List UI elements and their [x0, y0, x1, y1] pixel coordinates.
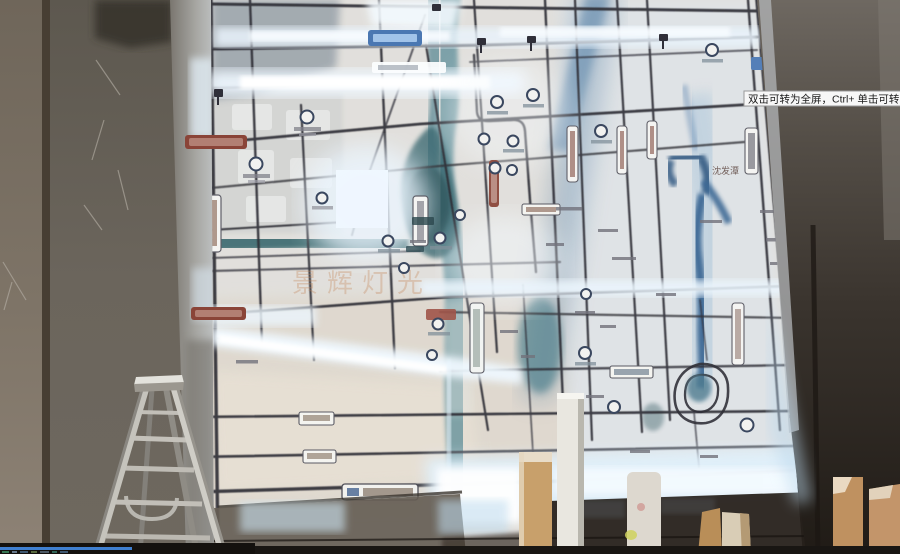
svg-text:双击可转为全屏，Ctrl+ 单击可转为: 双击可转为全屏，Ctrl+ 单击可转为 [748, 93, 900, 106]
